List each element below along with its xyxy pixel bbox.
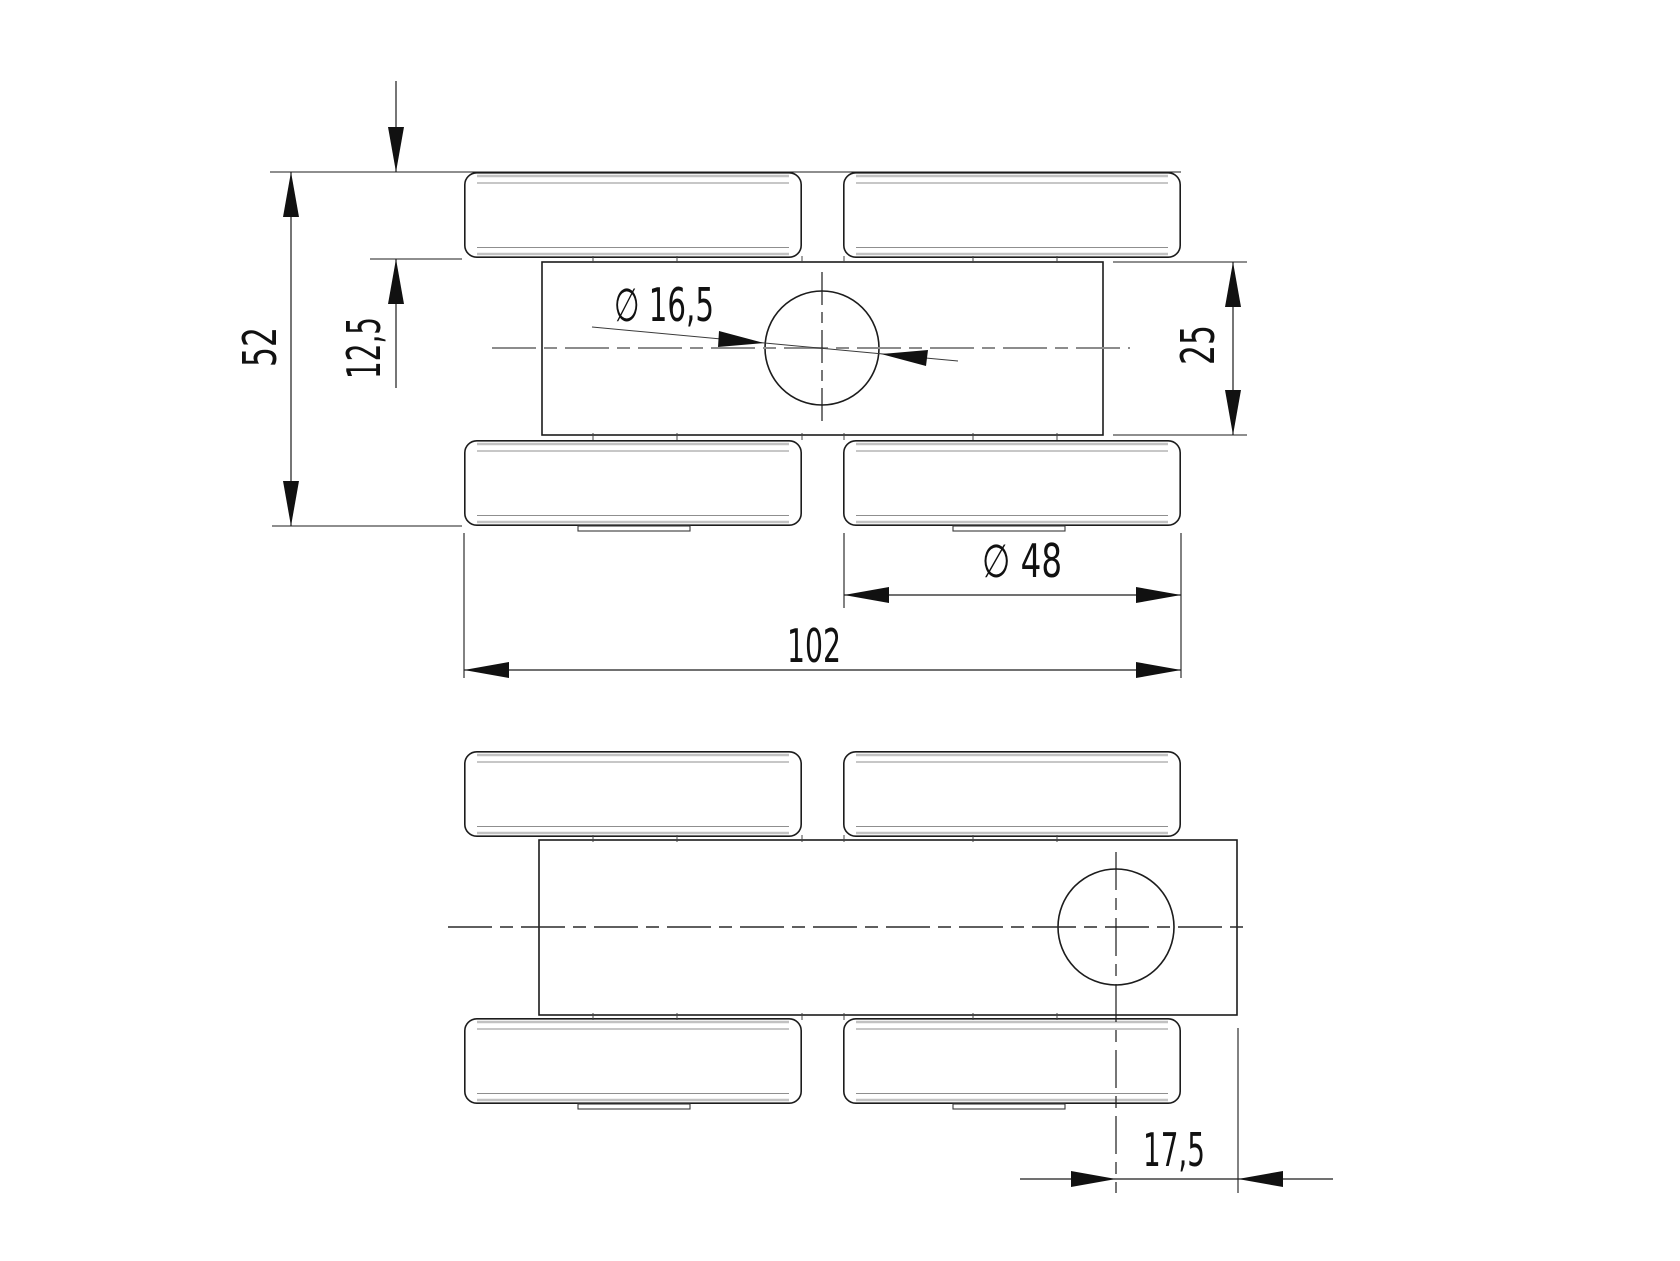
dimension-overall-length: 102 <box>464 533 1181 678</box>
arrow-up-icon <box>283 172 299 217</box>
roller-bottom-left <box>465 441 801 525</box>
dimension-label-17-5: 17,5 <box>1143 1123 1205 1177</box>
dimension-label-102: 102 <box>787 619 841 673</box>
roller-bottom-left <box>465 1019 801 1103</box>
arrow-down-icon <box>283 481 299 526</box>
dimension-label-52: 52 <box>233 327 287 367</box>
roller-bottom-right <box>844 441 1180 525</box>
arrow-left-icon <box>844 587 889 603</box>
roller-top-right <box>844 752 1180 836</box>
roller-bottom-right <box>844 1019 1180 1103</box>
arrow-right-icon <box>1071 1171 1116 1187</box>
dimension-label-12-5: 12,5 <box>337 317 391 379</box>
dimension-roller-diameter: ∅ 48 <box>844 533 1181 678</box>
dimension-roller-offset: 12,5 <box>337 81 462 388</box>
arrow-down-icon <box>1225 390 1241 435</box>
arrow-up-icon <box>1225 262 1241 307</box>
arrow-left-icon <box>1238 1171 1283 1187</box>
front-view: 52 12,5 25 ∅ 16,5 <box>233 81 1247 678</box>
arrow-right-icon <box>1136 587 1181 603</box>
dimension-label-roller-diameter: ∅ 48 <box>982 534 1062 588</box>
hub-tab-right <box>953 526 1065 531</box>
arrow-down-icon <box>388 127 404 172</box>
hub-tab-left <box>578 526 690 531</box>
dimension-label-25: 25 <box>1171 325 1225 365</box>
dimension-label-hole-diameter: ∅ 16,5 <box>614 278 714 332</box>
roller-top-left <box>465 752 801 836</box>
roller-top-right <box>844 173 1180 257</box>
plan-view: 17,5 <box>448 752 1333 1193</box>
arrow-up-icon <box>388 259 404 304</box>
technical-drawing: 52 12,5 25 ∅ 16,5 <box>0 0 1680 1261</box>
arrow-left-icon <box>464 662 509 678</box>
hub-tab-right <box>953 1104 1065 1109</box>
arrow-right-icon <box>1136 662 1181 678</box>
hub-tab-left <box>578 1104 690 1109</box>
roller-top-left <box>465 173 801 257</box>
dimension-plate-height: 25 <box>1113 262 1247 435</box>
